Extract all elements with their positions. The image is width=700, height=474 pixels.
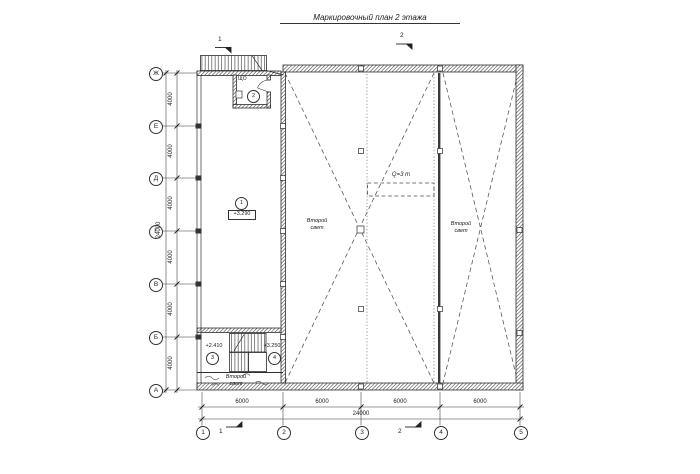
axis-bubble-row-zh: Ж	[149, 67, 163, 81]
crane-rail-dotted-lines	[367, 74, 434, 382]
section-mark-1-top: 1	[218, 37, 222, 44]
plan-linework	[0, 0, 700, 474]
dim-left-total: 24000	[156, 215, 162, 245]
crane-outline	[368, 183, 435, 196]
axis-bubble-col-4: 4	[434, 426, 448, 440]
dimension-ticks	[164, 71, 523, 422]
axis-bubble-row-d: Д	[149, 172, 163, 186]
section-mark-1-bottom: 1	[219, 429, 223, 436]
dim-bottom-total: 24000	[346, 411, 376, 417]
elevation-room-3: +2.410	[201, 344, 227, 350]
axis-bubble-row-b: Б	[149, 331, 163, 345]
axis-bubble-col-3: 3	[355, 426, 369, 440]
dim-left-seg-1: 4000	[168, 84, 174, 114]
electrical-panel-box	[236, 91, 242, 98]
wall-column-ticks	[196, 124, 202, 340]
dim-left-seg-2: 4000	[168, 136, 174, 166]
room-number-4: 4	[268, 352, 281, 365]
section-mark-2-bottom: 2	[398, 429, 402, 436]
second-light-label-right: Второй свет	[447, 221, 475, 234]
floor-plan-canvas: Маркировочный план 2 этажа 1 2 1 2 Ж Е Д…	[0, 0, 700, 474]
drawing-title: Маркировочный план 2 этажа	[280, 13, 460, 24]
axis-bubble-col-1: 1	[196, 426, 210, 440]
second-light-label-mid: Второй свет	[303, 218, 331, 231]
axis-bubble-col-2: 2	[277, 426, 291, 440]
dim-bottom-seg-1: 6000	[227, 399, 257, 405]
dim-bottom-seg-2: 6000	[307, 399, 337, 405]
equipment-label-scho: ЩО	[238, 77, 247, 82]
axis-bubble-row-a: А	[149, 384, 163, 398]
dim-bottom-seg-3: 6000	[385, 399, 415, 405]
axis-bubble-row-e: Е	[149, 120, 163, 134]
room-number-1: 1	[235, 197, 248, 210]
second-light-label-left: Второй свет	[222, 374, 250, 387]
dim-bottom-seg-4: 6000	[465, 399, 495, 405]
dim-left-seg-6: 4000	[168, 348, 174, 378]
internal-staircase	[230, 334, 267, 372]
axis-bubble-col-5: 5	[514, 426, 528, 440]
section-mark-2-top: 2	[400, 33, 404, 40]
dim-left-seg-4: 4000	[168, 242, 174, 272]
crane-capacity-label: Q=3 т	[386, 172, 416, 178]
axis-bubble-row-v: В	[149, 278, 163, 292]
room-number-2: 2	[247, 90, 260, 103]
room-number-3: 3	[206, 352, 219, 365]
door-swing	[258, 80, 269, 92]
dim-left-seg-3: 4000	[168, 188, 174, 218]
dim-left-seg-5: 4000	[168, 294, 174, 324]
elevation-room-4: +3.250	[259, 344, 285, 350]
elevation-room-1: +3.290	[228, 210, 256, 220]
